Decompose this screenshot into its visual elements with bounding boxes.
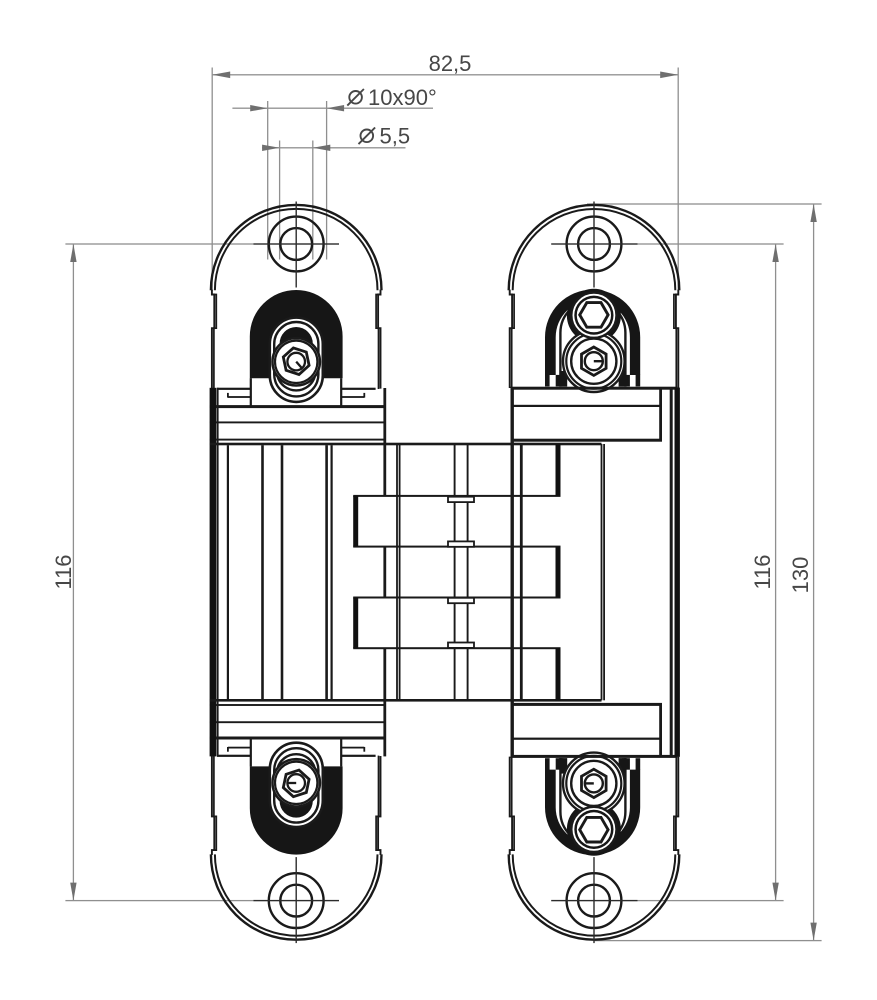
svg-text:5,5: 5,5 — [380, 123, 411, 148]
svg-text:10x90°: 10x90° — [368, 85, 437, 110]
svg-text:116: 116 — [750, 554, 775, 589]
svg-text:130: 130 — [788, 557, 813, 594]
svg-text:82,5: 82,5 — [429, 51, 472, 76]
svg-text:116: 116 — [51, 554, 76, 589]
